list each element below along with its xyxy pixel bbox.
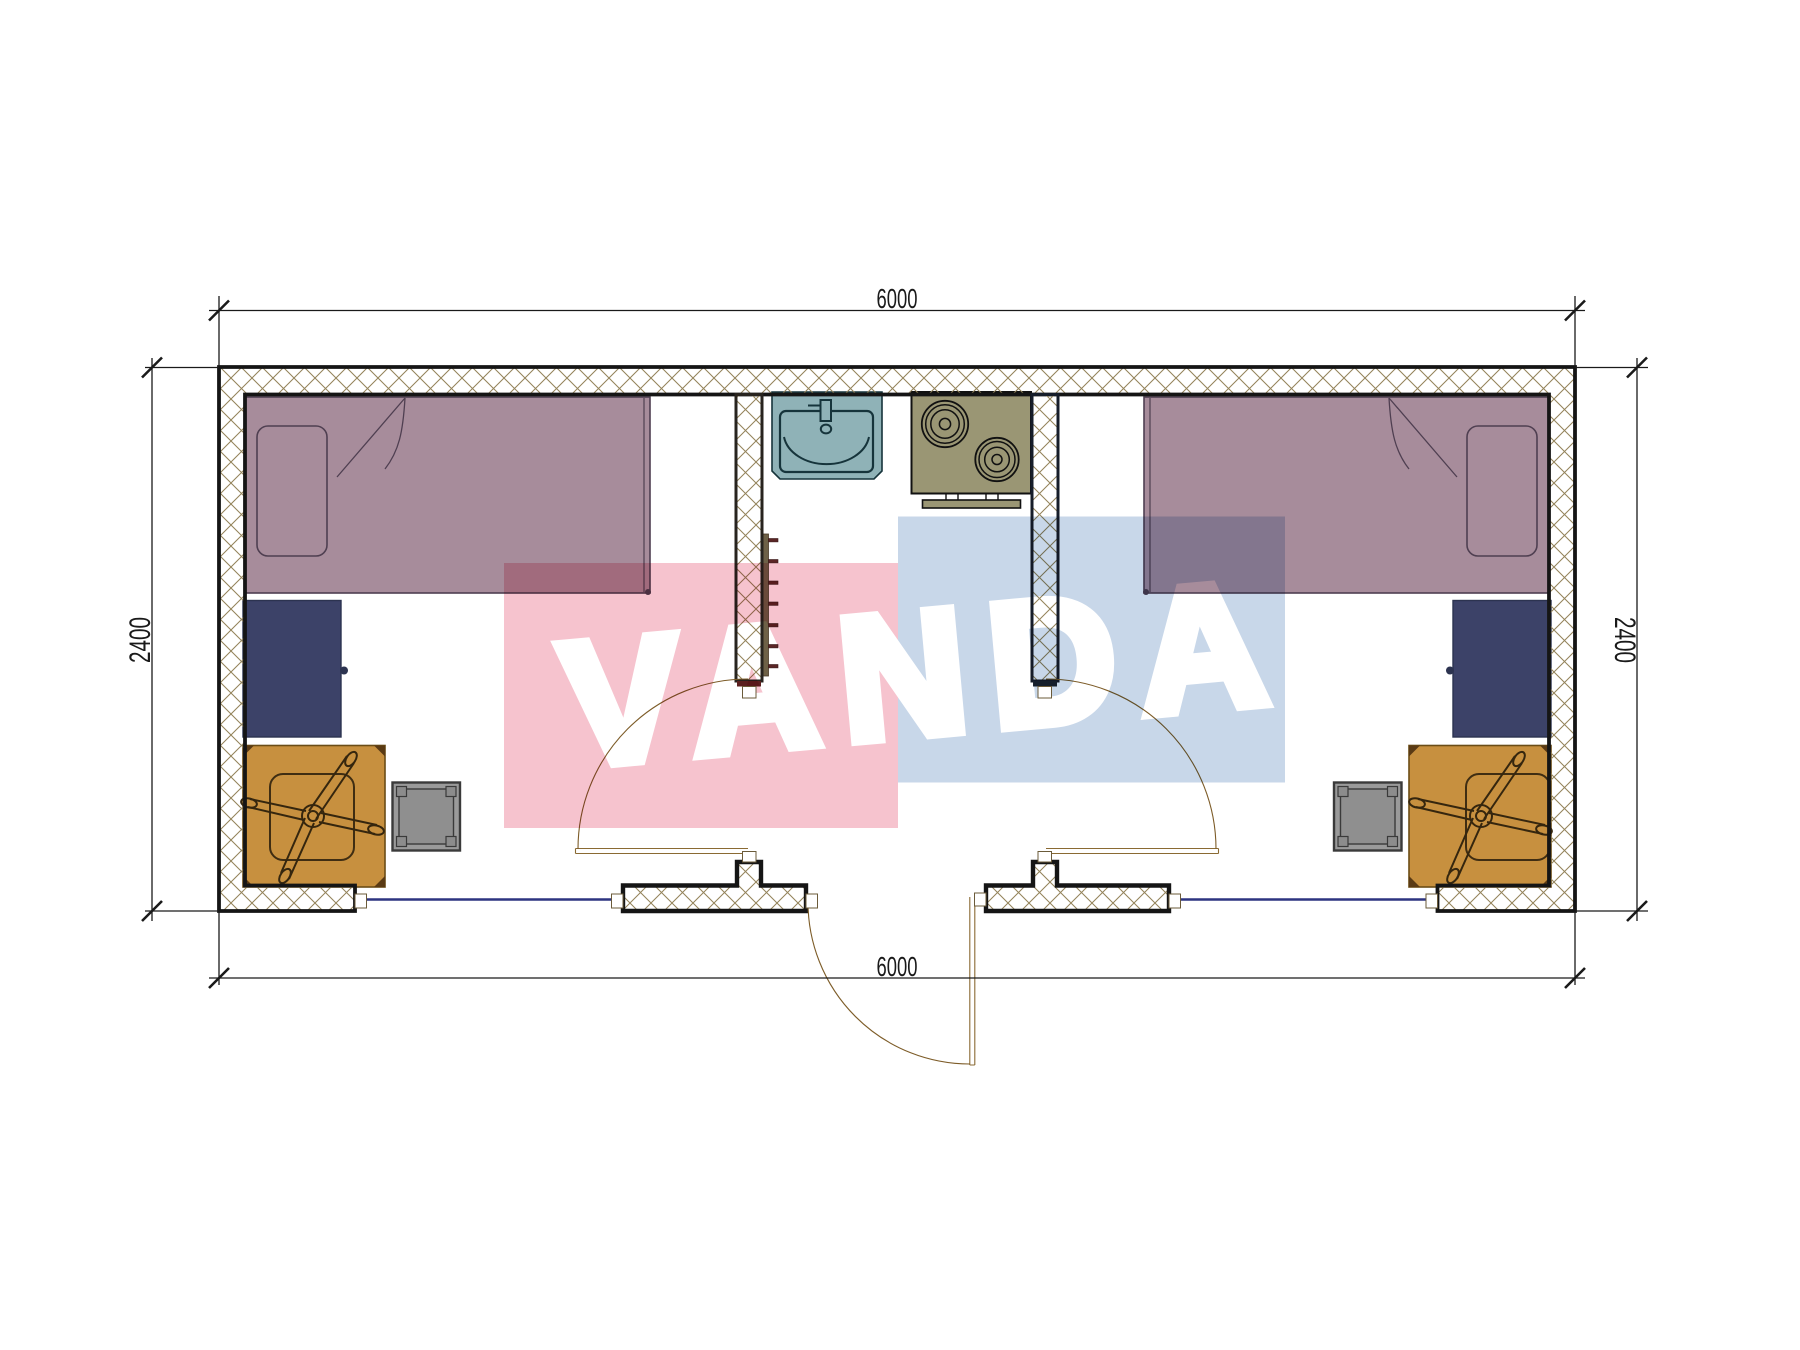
svg-text:6000: 6000 [877,951,918,982]
svg-text:2400: 2400 [1608,617,1641,663]
svg-text:2400: 2400 [124,617,157,663]
svg-text:6000: 6000 [877,283,918,314]
